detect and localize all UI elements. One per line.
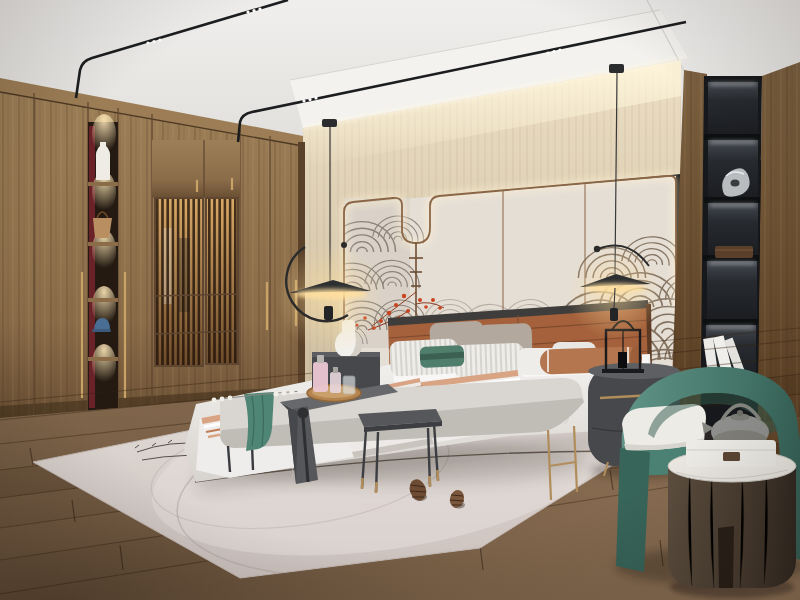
bedroom-scene <box>0 0 800 600</box>
vignette <box>0 0 800 600</box>
bedroom-render <box>0 0 800 600</box>
